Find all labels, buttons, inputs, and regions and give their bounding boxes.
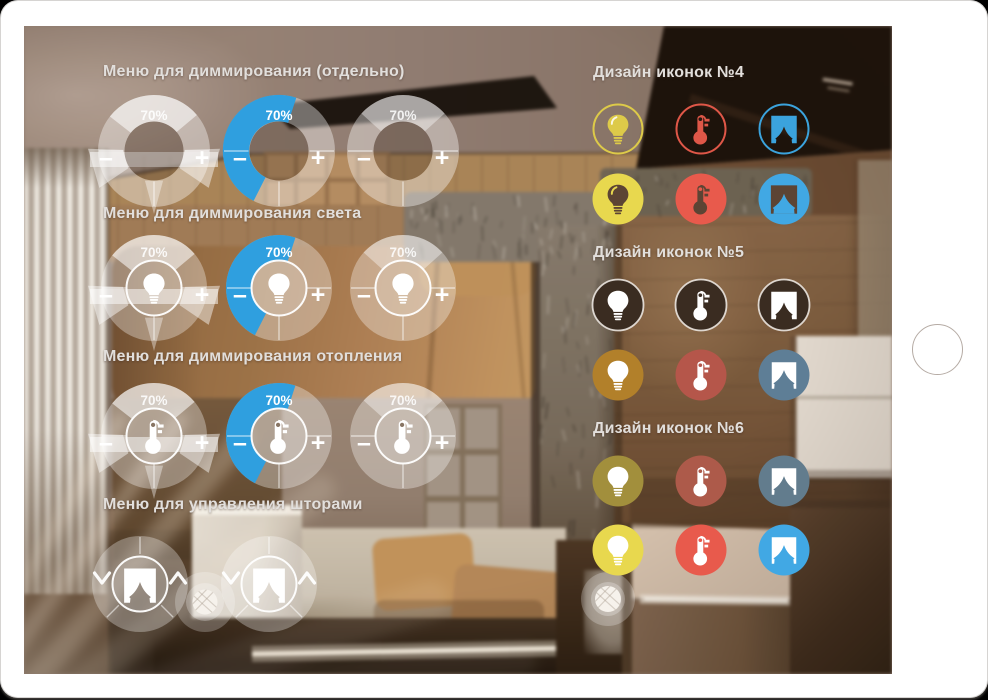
svg-text:–: – xyxy=(357,429,371,457)
svg-text:70%: 70% xyxy=(265,245,292,260)
svg-text:70%: 70% xyxy=(140,108,167,123)
svg-text:70%: 70% xyxy=(389,108,416,123)
svg-text:–: – xyxy=(233,281,247,309)
svg-text:70%: 70% xyxy=(265,108,292,123)
svg-text:+: + xyxy=(435,281,450,309)
svg-text:–: – xyxy=(233,144,247,172)
svg-text:70%: 70% xyxy=(389,393,416,408)
svg-text:70%: 70% xyxy=(140,245,167,260)
svg-text:+: + xyxy=(435,429,450,457)
svg-text:70%: 70% xyxy=(265,393,292,408)
svg-text:–: – xyxy=(99,281,113,309)
svg-text:70%: 70% xyxy=(140,393,167,408)
svg-text:–: – xyxy=(233,429,247,457)
svg-text:–: – xyxy=(357,281,371,309)
svg-text:–: – xyxy=(99,429,113,457)
svg-text:–: – xyxy=(357,144,371,172)
svg-text:–: – xyxy=(99,144,113,172)
svg-text:70%: 70% xyxy=(389,245,416,260)
svg-text:+: + xyxy=(435,144,450,172)
